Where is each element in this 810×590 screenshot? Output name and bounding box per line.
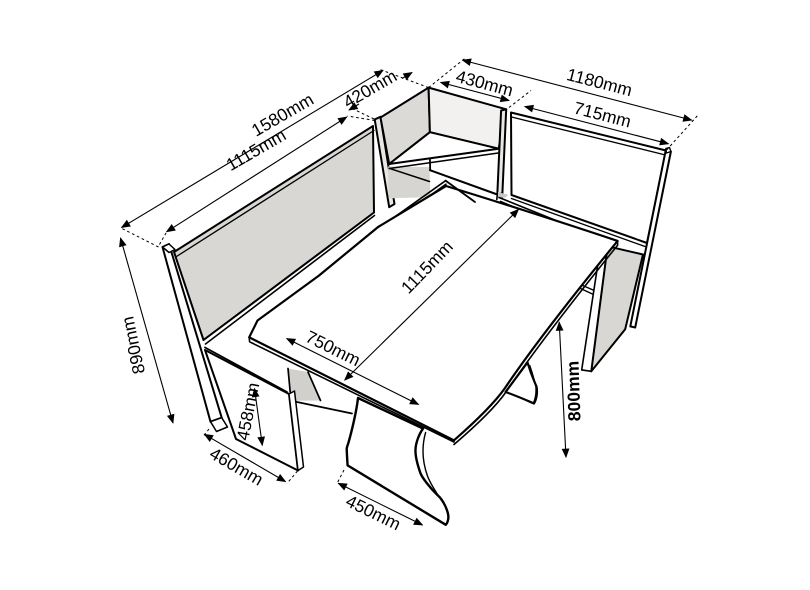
svg-text:800mm: 800mm (562, 361, 584, 422)
svg-text:420mm: 420mm (340, 66, 401, 113)
svg-text:1180mm: 1180mm (565, 64, 635, 100)
svg-text:450mm: 450mm (343, 491, 404, 535)
svg-text:890mm: 890mm (117, 315, 149, 376)
